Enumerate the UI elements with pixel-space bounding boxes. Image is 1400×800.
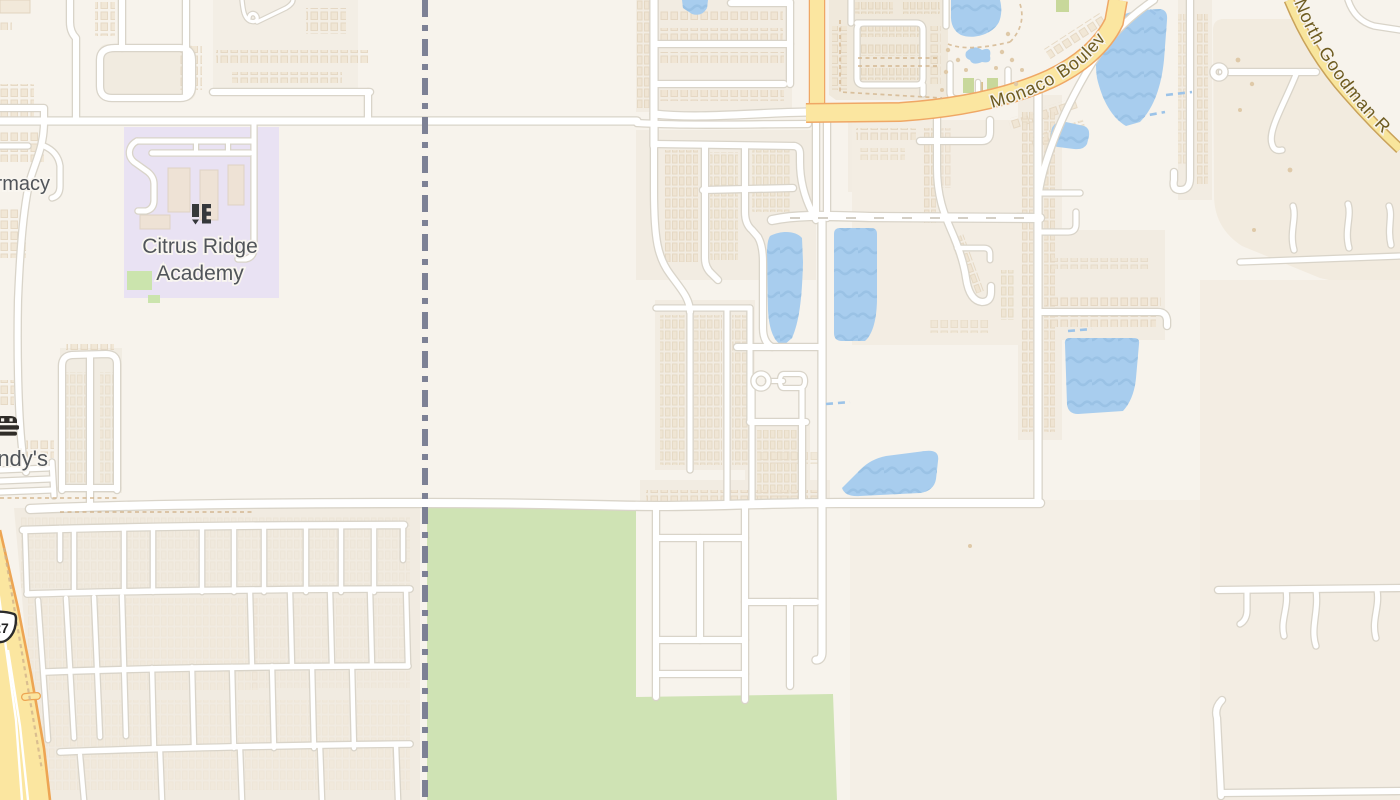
svg-text:Citrus Ridge: Citrus Ridge	[142, 235, 258, 258]
svg-text:27: 27	[0, 620, 9, 636]
svg-text:Wendy's: Wendy's	[0, 446, 48, 471]
svg-text:Academy: Academy	[156, 262, 244, 285]
svg-text:Pharmacy: Pharmacy	[0, 173, 50, 195]
